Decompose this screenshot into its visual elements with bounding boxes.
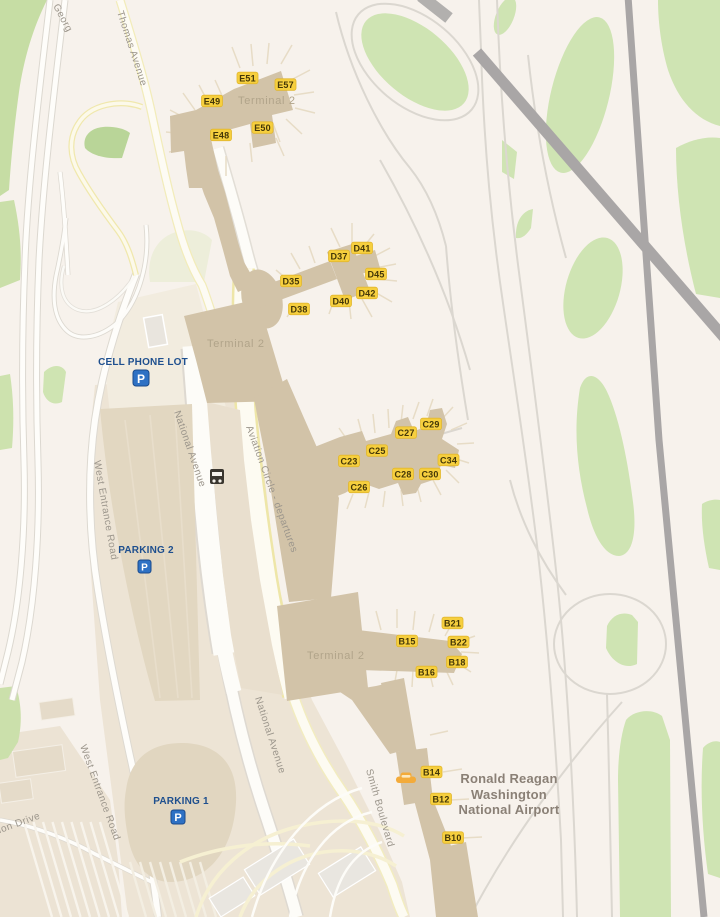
svg-text:C23: C23 xyxy=(340,456,357,466)
svg-text:E51: E51 xyxy=(239,73,256,83)
svg-text:B10: B10 xyxy=(444,833,461,843)
svg-text:CELL PHONE LOT: CELL PHONE LOT xyxy=(98,357,188,368)
svg-text:P: P xyxy=(137,372,145,386)
svg-text:Terminal 2: Terminal 2 xyxy=(238,95,296,107)
svg-text:National Airport: National Airport xyxy=(459,802,560,817)
svg-text:D40: D40 xyxy=(332,296,349,306)
svg-text:E49: E49 xyxy=(204,96,221,106)
svg-text:D37: D37 xyxy=(330,251,347,261)
svg-text:D45: D45 xyxy=(367,269,384,279)
svg-text:B21: B21 xyxy=(444,618,461,628)
svg-text:E48: E48 xyxy=(213,130,230,140)
svg-text:C28: C28 xyxy=(394,469,411,479)
svg-text:E50: E50 xyxy=(254,123,271,133)
svg-text:PARKING 1: PARKING 1 xyxy=(153,796,209,807)
svg-text:B22: B22 xyxy=(450,637,467,647)
svg-text:C29: C29 xyxy=(422,419,439,429)
svg-text:PARKING 2: PARKING 2 xyxy=(118,545,174,556)
svg-text:C25: C25 xyxy=(368,446,385,456)
svg-text:B14: B14 xyxy=(423,767,440,777)
svg-text:D41: D41 xyxy=(353,243,370,253)
svg-text:C34: C34 xyxy=(440,455,457,465)
svg-text:P: P xyxy=(174,812,181,824)
svg-text:C30: C30 xyxy=(421,469,438,479)
svg-text:C27: C27 xyxy=(397,428,414,438)
svg-text:D38: D38 xyxy=(290,304,307,314)
svg-text:C26: C26 xyxy=(350,482,367,492)
svg-text:Terminal 2: Terminal 2 xyxy=(207,338,265,350)
svg-text:B12: B12 xyxy=(432,794,449,804)
svg-text:B15: B15 xyxy=(398,636,415,646)
svg-text:D42: D42 xyxy=(358,288,375,298)
svg-text:P: P xyxy=(141,563,148,574)
svg-text:D35: D35 xyxy=(282,276,299,286)
svg-text:E57: E57 xyxy=(277,80,294,90)
svg-text:B16: B16 xyxy=(418,667,435,677)
svg-text:B18: B18 xyxy=(448,657,465,667)
svg-text:Ronald Reagan: Ronald Reagan xyxy=(460,771,557,786)
svg-text:Terminal 2: Terminal 2 xyxy=(307,650,365,662)
svg-text:Washington: Washington xyxy=(471,787,547,802)
